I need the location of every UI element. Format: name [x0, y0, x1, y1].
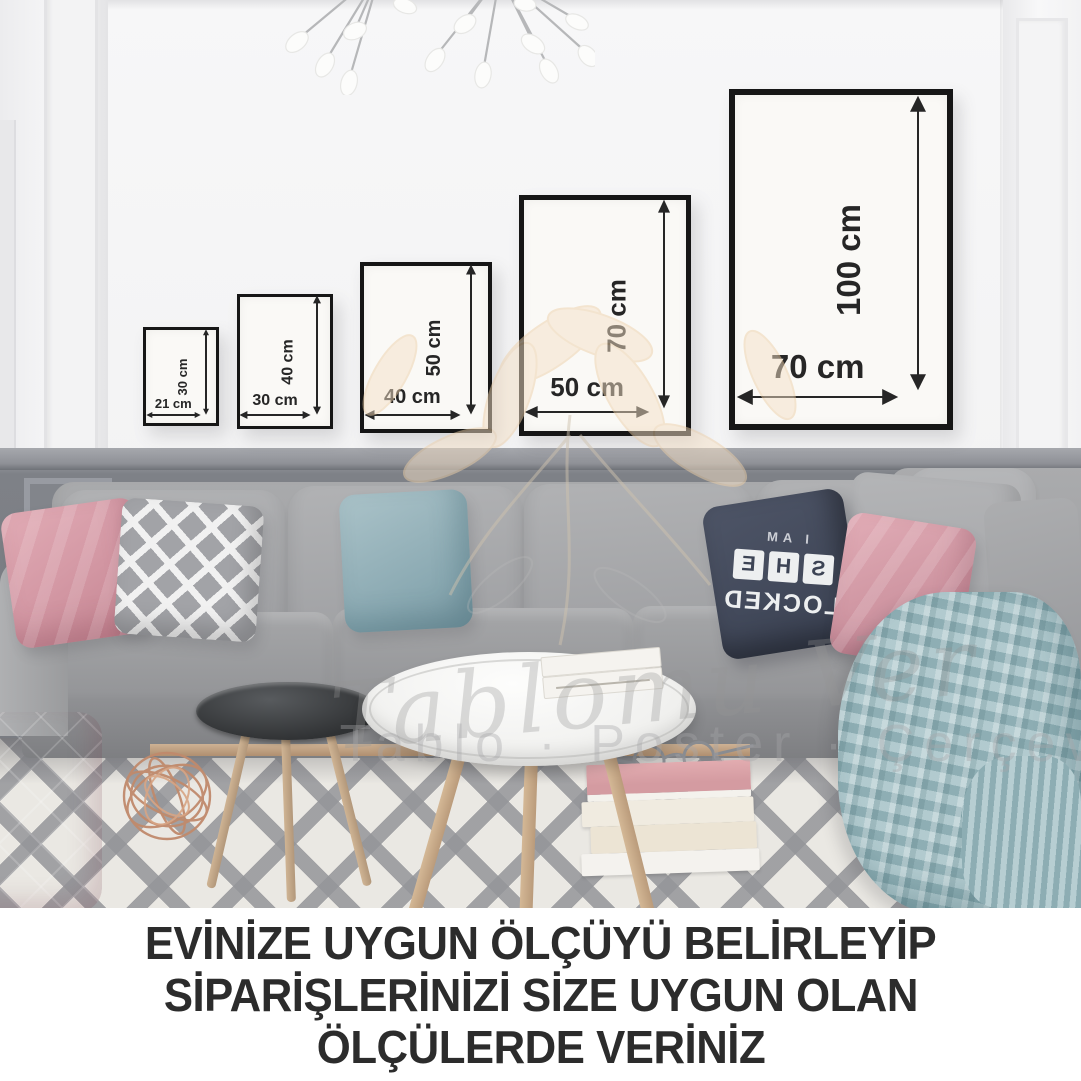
table-leg: [403, 752, 466, 908]
height-label: 70 cm: [601, 279, 632, 353]
left-wall-molding: [44, 0, 98, 464]
chandelier-bulbs: [285, 0, 595, 95]
frame-70x100: 100 cm 70 cm: [729, 89, 953, 430]
width-arrow: [537, 411, 637, 413]
chunky-knit-blanket-drape: [962, 756, 1081, 908]
height-arrow: [470, 274, 472, 404]
table-leg: [519, 756, 538, 908]
frame-21x30: 30 cm 21 cm: [143, 327, 219, 426]
height-label: 100 cm: [830, 204, 868, 316]
teal-velvet-pillow: [338, 489, 473, 634]
height-arrow: [917, 111, 919, 374]
left-wall-edge-panel: [0, 120, 16, 460]
caption-line-3: ÖLÇÜLERDE VERİNİZ: [316, 1021, 764, 1073]
book-spine-line: [556, 679, 650, 689]
width-label: 70 cm: [752, 348, 883, 386]
letter-tile: E: [733, 549, 765, 581]
left-wall-pillar: [0, 0, 108, 458]
geometric-pattern-pillow: [113, 497, 264, 643]
white-round-coffee-table: [362, 652, 702, 902]
width-label: 30 cm: [247, 392, 303, 410]
width-label: 40 cm: [374, 386, 451, 409]
frame-40x50: 50 cm 40 cm: [360, 262, 492, 433]
width-arrow: [152, 414, 195, 416]
right-wall-pillar: [1003, 0, 1081, 462]
dark-table-top: [196, 682, 380, 740]
width-arrow: [374, 414, 451, 416]
height-arrow: [205, 335, 207, 409]
poster-size-guide-image: 30 cm 21 cm 40 cm 30 cm 50 cm 40 cm 70 c…: [0, 0, 1081, 1081]
pillow-letter-tiles: S H E: [733, 549, 835, 586]
caption-block: EVİNİZE UYGUN ÖLÇÜYÜ BELİRLEYİP SİPARİŞL…: [0, 908, 1081, 1081]
height-label: 30 cm: [175, 358, 190, 395]
letter-tile: H: [767, 551, 799, 583]
pink-quilted-ottoman: [0, 712, 102, 908]
living-room-photo: 30 cm 21 cm 40 cm 30 cm 50 cm 40 cm 70 c…: [0, 0, 1081, 908]
table-leg: [281, 734, 296, 902]
caption-line-2: SİPARİŞLERİNİZİ SİZE UYGUN OLAN: [163, 969, 917, 1021]
height-label: 50 cm: [423, 319, 446, 376]
frame-50x70: 70 cm 50 cm: [519, 195, 691, 436]
height-label: 40 cm: [279, 339, 297, 384]
pillow-text-bottom: LOCKED: [721, 585, 840, 622]
caption-line-1: EVİNİZE UYGUN ÖLÇÜYÜ BELİRLEYİP: [145, 917, 936, 969]
height-arrow: [316, 303, 318, 406]
width-arrow: [247, 414, 303, 416]
letter-tile: S: [802, 553, 834, 585]
width-arrow: [752, 396, 883, 398]
pillow-text-top: I AM: [762, 528, 810, 546]
dark-round-side-table: [196, 682, 386, 892]
chair-rail: [0, 448, 1081, 470]
width-label: 21 cm: [152, 396, 195, 411]
table-leg: [206, 731, 251, 889]
right-wall-molding: [1016, 18, 1068, 454]
height-arrow: [663, 212, 665, 397]
frame-30x40: 40 cm 30 cm: [237, 294, 333, 429]
sputnik-chandelier: [285, 0, 595, 95]
width-label: 50 cm: [537, 372, 637, 403]
table-leg: [602, 749, 659, 908]
